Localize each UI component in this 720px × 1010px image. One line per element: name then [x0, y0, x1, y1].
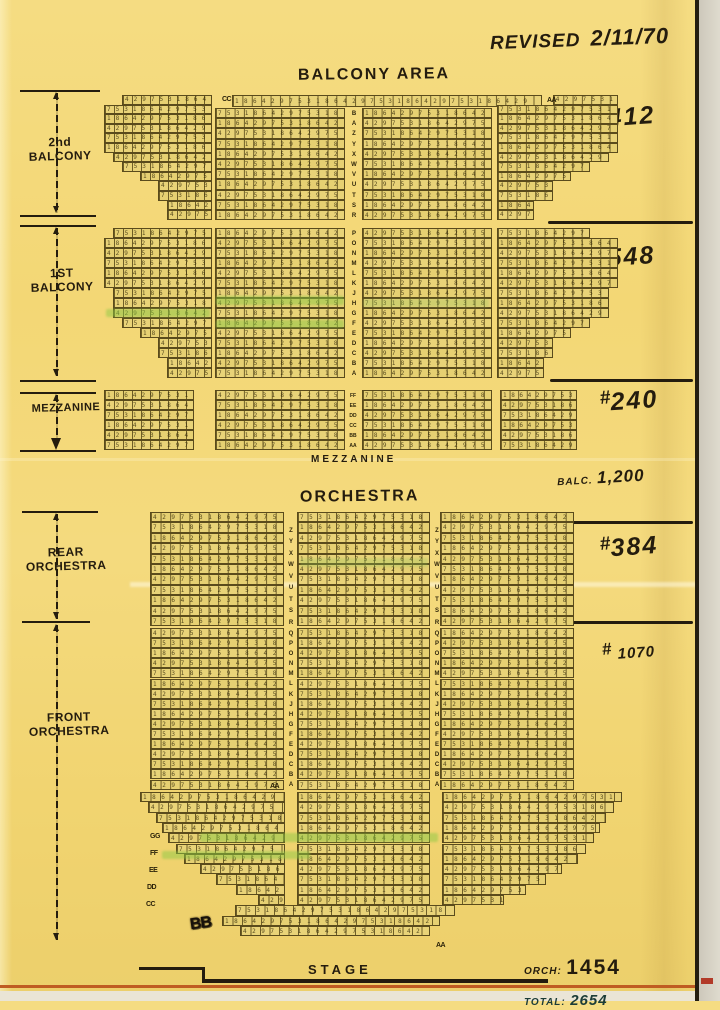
- seat-row: 753186429753186: [442, 844, 586, 854]
- seat-row: 4297531: [553, 95, 618, 105]
- row-letter: Z: [347, 129, 361, 139]
- seat-row: 42975318642975: [297, 802, 430, 812]
- seat-row: 18642975: [140, 172, 212, 182]
- count-rule: [568, 521, 693, 524]
- row-letter: R: [347, 211, 361, 221]
- seat-row: 42975318642975: [362, 440, 492, 450]
- seat-row: 42975318642975: [297, 595, 430, 605]
- seat-row: 75318642975318: [215, 139, 345, 149]
- row-letter: N: [285, 659, 297, 669]
- row-letter: L: [347, 269, 361, 279]
- seat-row: 18642975318642: [297, 522, 430, 532]
- seat-row: 186429753186: [104, 268, 212, 278]
- seat-row: 75318642975318: [215, 169, 345, 179]
- seat-row: 18642975318642: [440, 689, 574, 699]
- seat-row: 4297531864297: [442, 864, 562, 874]
- seat-row: 42975318642975: [297, 769, 430, 779]
- dim-line-front-orchestra: [56, 625, 58, 940]
- seat-row: 42975318642975: [215, 390, 345, 400]
- seat-row: 42975318642975: [150, 749, 284, 759]
- row-letter: B: [347, 109, 361, 119]
- row-letter: B: [285, 770, 297, 780]
- seat-row: 7531864297: [104, 410, 194, 420]
- seat-row: 7531864297531: [497, 105, 618, 115]
- arrow-down-icon: [53, 612, 59, 619]
- seat-row: 186429753: [500, 420, 577, 430]
- seat-row: 18642975318642: [440, 780, 574, 790]
- seat-row: 753186429: [500, 410, 577, 420]
- seat-row: 18642975318642: [362, 248, 492, 258]
- seat-row: 75318642975318: [297, 749, 430, 759]
- section-label-line2: BALCONY: [14, 279, 110, 296]
- seat-row: 18642975318642: [215, 210, 345, 220]
- row-edge-label: AA: [547, 97, 556, 104]
- seat-row: 7531864297: [122, 162, 212, 172]
- row-letter: C: [285, 760, 297, 770]
- seat-row: 18642975318642: [440, 628, 574, 638]
- row-letter: F: [285, 730, 297, 740]
- highlight-marker: [162, 851, 310, 859]
- seat-row: 4297531864297: [497, 248, 618, 258]
- seat-row: 75318642975318: [440, 648, 574, 658]
- seat-row: 75318642975318: [150, 585, 284, 595]
- seat-row: 75318642975318: [440, 533, 574, 543]
- aisle-row-letters: PONMLKJHGFEDCBA: [347, 229, 361, 379]
- orchestra-title: ORCHESTRA: [300, 487, 420, 506]
- seat-row: 18642975318642: [150, 648, 284, 658]
- mezzanine-caption: MEZZANINE: [311, 454, 396, 465]
- seat-row: 18642975318642: [440, 658, 574, 668]
- seat-row: 18642975318642: [362, 108, 492, 118]
- seat-row: 42975318642975: [362, 288, 492, 298]
- row-letter: M: [431, 669, 443, 679]
- count-rule: [550, 379, 693, 382]
- row-letter: H: [347, 299, 361, 309]
- aisle-row-letters: ZYXWVUTSR: [285, 514, 297, 629]
- seat-row: 75318642975318: [362, 268, 492, 278]
- seat-row: 4297531864297: [497, 124, 618, 134]
- seat-row: 42975318642975: [362, 210, 492, 220]
- seat-row: 75318642975318: [362, 420, 492, 430]
- row-letter: U: [347, 180, 361, 190]
- seat-row: 18642975318642: [215, 410, 345, 420]
- count-value: 1070: [617, 643, 655, 663]
- section-label-front-orchestra: FRONT ORCHESTRA: [14, 709, 125, 740]
- seat-row: 75318642975318: [215, 248, 345, 258]
- row-letter: C: [431, 760, 443, 770]
- seat-row: 18642975318642: [297, 616, 430, 626]
- seat-row: 75318642975318: [215, 430, 345, 440]
- row-letter: AA: [345, 441, 361, 451]
- section-label-line2: ORCHESTRA: [14, 723, 124, 740]
- seat-row: 42975318642975: [297, 864, 430, 874]
- seat-row: 18642975318642: [297, 792, 430, 802]
- seat-row: 42975: [167, 210, 212, 220]
- row-letter: U: [431, 583, 443, 595]
- seat-row: 1864297531864: [497, 114, 618, 124]
- seat-row: 42975318642975: [215, 238, 345, 248]
- seat-row: 429753186: [500, 430, 577, 440]
- seat-row: 753186: [497, 191, 553, 201]
- seat-row: 75318642975318: [297, 574, 430, 584]
- seat-row: 75318642975318: [297, 780, 430, 790]
- seat-row: 42975318642975: [150, 719, 284, 729]
- section-label-line2: BALCONY: [12, 148, 108, 165]
- row-letter: W: [431, 560, 443, 572]
- row-letter: BB: [345, 431, 361, 441]
- balcony-total-label: BALC.: [557, 475, 593, 488]
- seat-row: 18642975318642: [150, 769, 284, 779]
- dim-line-mezzanine: [56, 395, 58, 440]
- seat-row: 42975318642975: [297, 648, 430, 658]
- seat-row: 75318642975318: [215, 368, 345, 378]
- dim-rule-orchestra-top: [22, 511, 98, 513]
- row-letter: K: [347, 279, 361, 289]
- aisle-row-letters: QPONMLKJHGFEDCBA: [285, 629, 297, 791]
- seat-row: 75318642975318: [215, 200, 345, 210]
- seat-row: 18642975318642: [297, 668, 430, 678]
- row-letter: R: [431, 618, 443, 630]
- seat-row: 1864297531864: [162, 823, 285, 833]
- row-letter: E: [285, 740, 297, 750]
- revised-date: 2/11/70: [590, 23, 670, 51]
- section-label-mezzanine: MEZZANINE: [14, 401, 118, 417]
- seat-row: 18642975318642: [297, 823, 430, 833]
- row-letter: U: [285, 583, 297, 595]
- count-value: 240: [610, 385, 660, 416]
- seat-row: 1864297531: [104, 390, 194, 400]
- row-edge-label: AA: [270, 783, 279, 790]
- row-letter: V: [431, 572, 443, 584]
- seat-row: 42975318642975: [440, 585, 574, 595]
- seat-row: 18642975318642: [362, 278, 492, 288]
- row-letter: Y: [431, 537, 443, 549]
- row-letter: P: [285, 639, 297, 649]
- arrow-down-icon: [51, 438, 61, 450]
- seat-row: 42975: [497, 368, 544, 378]
- seat-row: 75318642975318: [150, 668, 284, 678]
- scanned-seating-chart: { "header": { "revised_label": "REVISED"…: [0, 0, 720, 1001]
- seat-row: 42975318642975: [150, 658, 284, 668]
- count-mezzanine: #240: [599, 384, 659, 418]
- seat-row: 7531864297: [497, 228, 590, 238]
- arrow-up-icon: [53, 227, 59, 234]
- seat-row: 75318642975318: [215, 278, 345, 288]
- seat-row: 753186429: [500, 440, 577, 450]
- seat-row: 42975318642975: [150, 606, 284, 616]
- row-letter: M: [285, 669, 297, 679]
- seat-row: 75318642975318642975318: [235, 905, 455, 915]
- seat-row: 75318642975318: [297, 874, 430, 884]
- seat-row: 75318642975318: [150, 699, 284, 709]
- seat-row: 75318642975318: [215, 108, 345, 118]
- seat-row: 429753186: [500, 400, 577, 410]
- seat-row: 18642975318642: [440, 512, 574, 522]
- seat-row: 75318642975318642: [442, 813, 606, 823]
- seat-row: 18642975318642: [362, 169, 492, 179]
- row-letter: A: [347, 119, 361, 129]
- seat-row: 7531864297531: [497, 133, 618, 143]
- highlight-marker: [363, 299, 489, 307]
- seat-row: 18642975318642: [362, 308, 492, 318]
- orchestra-total-label: ORCH:: [524, 966, 562, 977]
- row-letter: Q: [285, 629, 297, 639]
- seat-row: 75318642975318: [297, 719, 430, 729]
- row-letter: K: [431, 690, 443, 700]
- row-letter: V: [285, 572, 297, 584]
- row-letter: A: [285, 780, 297, 790]
- seat-row: 42975: [167, 368, 212, 378]
- aisle-row-letters: BAZYXWVUTSR: [347, 109, 361, 221]
- dim-rule-mezzanine-bottom: [20, 450, 96, 452]
- seat-row: 753186: [158, 348, 212, 358]
- hash-sign: #: [601, 639, 612, 659]
- highlight-marker: [200, 833, 438, 842]
- seat-row: 42975318642975: [362, 118, 492, 128]
- seat-row: 42975318642975: [297, 533, 430, 543]
- row-letter: S: [285, 606, 297, 618]
- seat-row: 75318642975318: [215, 338, 345, 348]
- seat-row: 429753: [497, 338, 553, 348]
- row-letter: G: [347, 309, 361, 319]
- seat-row: 75318642975318: [297, 813, 430, 823]
- row-letter: W: [285, 560, 297, 572]
- row-letter: L: [285, 679, 297, 689]
- seat-row: 429753186429: [104, 124, 212, 134]
- seat-row: 42975318642975: [150, 780, 284, 790]
- row-letter: R: [285, 618, 297, 630]
- seat-row: 42975318642975: [148, 802, 285, 812]
- row-letter: J: [347, 289, 361, 299]
- count-rear-orchestra: #384: [599, 530, 659, 564]
- seat-row: 42975318642975: [362, 348, 492, 358]
- dim-rule-boundary: [20, 215, 96, 217]
- seat-row: 75318642975318: [297, 543, 430, 553]
- seat-row: 186429753: [442, 885, 526, 895]
- seat-row: 18642975: [140, 328, 212, 338]
- seat-row: 42975318642975: [440, 554, 574, 564]
- row-letter: D: [347, 339, 361, 349]
- seat-row: 18642975: [497, 172, 571, 182]
- row-edge-label: FF: [150, 850, 158, 857]
- row-scribble: BB: [189, 914, 212, 935]
- highlight-marker: [216, 296, 344, 305]
- row-edge-label: AA: [436, 942, 445, 949]
- seat-row: 18642: [236, 885, 285, 895]
- row-letter: X: [347, 150, 361, 160]
- seat-row: 18642975318642: [215, 258, 345, 268]
- arrow-up-icon: [53, 92, 59, 99]
- seat-row: 18642975318642: [442, 854, 578, 864]
- row-letter: L: [431, 679, 443, 689]
- grand-total-label: TOTAL:: [524, 997, 566, 1008]
- seat-row: 75318642975318: [215, 400, 345, 410]
- seat-row: 75318642975318: [156, 813, 285, 823]
- seat-row: 4297531: [442, 895, 504, 905]
- row-letter: A: [431, 780, 443, 790]
- row-letter: EE: [345, 401, 361, 411]
- row-letter: X: [431, 549, 443, 561]
- arrow-up-icon: [53, 624, 59, 631]
- seat-row: 75318642975: [113, 288, 212, 298]
- seat-row: 42975318642975: [215, 328, 345, 338]
- row-letter: V: [347, 170, 361, 180]
- seat-row: 42975318642975: [297, 895, 430, 905]
- seat-row: 75318642975318: [297, 606, 430, 616]
- seat-row: 18642: [167, 358, 212, 368]
- seat-row: 75318642975: [113, 228, 212, 238]
- seat-row: 42975318642975: [215, 420, 345, 430]
- seat-row: 7531864297: [497, 318, 590, 328]
- seat-row: 7531864297: [122, 318, 212, 328]
- seat-row: 186429753: [500, 390, 577, 400]
- row-letter: S: [347, 201, 361, 211]
- seat-row: 18642975318642: [440, 749, 574, 759]
- seat-row: 42975318642975: [297, 679, 430, 689]
- dim-rule-top-2nd-balcony: [20, 90, 100, 92]
- seat-row: 42975318642975: [215, 159, 345, 169]
- seat-row: 75318642975318: [440, 769, 574, 779]
- seat-row: 753186: [497, 348, 553, 358]
- seat-row: 42975318642: [113, 153, 212, 163]
- row-letter: Z: [431, 526, 443, 538]
- seat-row: 18642975318642: [150, 679, 284, 689]
- seat-row: 1864297531: [104, 420, 194, 430]
- row-letter: H: [431, 710, 443, 720]
- seat-row: 42975318642975: [150, 543, 284, 553]
- seat-row: 42975318642975: [215, 358, 345, 368]
- scan-edge-strip: [699, 0, 720, 1001]
- seat-row: 7531864297: [497, 162, 590, 172]
- seat-row: 7531864297: [104, 440, 194, 450]
- seat-row: 18642975318642: [440, 574, 574, 584]
- seat-row: 429753186429: [497, 153, 609, 163]
- row-letter: K: [285, 690, 297, 700]
- seat-row: 42975318642975: [440, 522, 574, 532]
- seat-row: 4297531864: [104, 400, 194, 410]
- balcony-total: BALC. 1,200: [557, 466, 645, 491]
- seat-row: 18642975318642: [150, 595, 284, 605]
- seat-row: 18642975318642: [215, 179, 345, 189]
- section-label-second-balcony: 2nd BALCONY: [12, 134, 109, 165]
- seat-row: 75318642975318: [362, 128, 492, 138]
- aisle-row-letters: ZYXWVUTSR: [431, 514, 443, 629]
- row-letter: N: [347, 249, 361, 259]
- seat-row: 42975318642975: [215, 268, 345, 278]
- seat-row: 18642975318642: [215, 149, 345, 159]
- arrow-up-icon: [53, 394, 59, 401]
- seat-row: 1864297531864: [497, 238, 618, 248]
- seat-row: 18642975318: [113, 298, 212, 308]
- seat-row: 18642975318642: [150, 564, 284, 574]
- row-letter: F: [347, 319, 361, 329]
- seat-row: 186429753186: [104, 238, 212, 248]
- seat-row: 75318642975: [442, 874, 546, 884]
- seat-row: 753186429753: [497, 288, 609, 298]
- count-rule: [548, 221, 693, 224]
- seat-row: 18642975318642975: [442, 823, 600, 833]
- seat-row: 18642975318642: [362, 400, 492, 410]
- row-letter: T: [431, 595, 443, 607]
- seat-row: 18642975318642: [150, 739, 284, 749]
- seat-row: 1864: [497, 201, 534, 211]
- seat-row: 4297531864297531: [442, 833, 594, 843]
- seat-row: 42975318642975: [362, 228, 492, 238]
- seat-row: 42975318642975: [440, 638, 574, 648]
- orchestra-total: ORCH: 1454: [524, 956, 621, 980]
- seat-row: 42975318642975: [150, 574, 284, 584]
- dim-rule-orchestra-split: [22, 621, 90, 623]
- seat-row: 18642975318642: [297, 759, 430, 769]
- seat-row: 42975318642975: [215, 190, 345, 200]
- row-letter: M: [347, 259, 361, 269]
- seat-row: 75318642975318: [362, 190, 492, 200]
- seat-row: 7531864297531: [497, 258, 618, 268]
- seat-row: 42975318642975: [440, 699, 574, 709]
- seat-row: 75318642975318: [440, 679, 574, 689]
- seat-row: 429753186429: [497, 308, 609, 318]
- seat-row: 75318642975318: [440, 595, 574, 605]
- seat-row: 429753186429: [104, 248, 212, 258]
- seat-row: 75318642975318: [362, 390, 492, 400]
- highlight-marker: [106, 309, 210, 317]
- row-letter: T: [347, 191, 361, 201]
- seat-row: 75318642975318: [362, 358, 492, 368]
- orchestra-total-value: 1454: [566, 956, 621, 979]
- seat-row: 75318642975318: [362, 159, 492, 169]
- seat-row: 75318642975318: [440, 709, 574, 719]
- seat-row: 18642975318642: [440, 606, 574, 616]
- row-edge-label: EE: [149, 867, 157, 874]
- section-label-rear-orchestra: REAR ORCHESTRA: [14, 544, 119, 575]
- section-label-line2: ORCHESTRA: [14, 558, 118, 575]
- row-letter: CC: [345, 421, 361, 431]
- row-letter: F: [431, 730, 443, 740]
- row-letter: W: [347, 160, 361, 170]
- row-letter: G: [285, 720, 297, 730]
- row-letter: FF: [345, 391, 361, 401]
- seat-row: 18642975318642: [362, 200, 492, 210]
- seat-row: 42975318642975: [297, 709, 430, 719]
- seat-row: 186429753186429: [140, 792, 285, 802]
- seat-row: 18642975318642: [215, 228, 345, 238]
- seat-row: 18642975318642: [215, 348, 345, 358]
- paper-edge-light: [0, 0, 12, 1001]
- seat-row: 753186: [158, 191, 212, 201]
- seat-row: 42975318642975318642: [240, 926, 430, 936]
- seat-row: 429753: [158, 338, 212, 348]
- seat-row: 186429753186: [104, 114, 212, 124]
- row-letter: J: [431, 700, 443, 710]
- seat-row: 429753186429753186: [442, 802, 614, 812]
- row-letter: A: [347, 369, 361, 379]
- seat-row: 18642975318642: [297, 585, 430, 595]
- row-letter: O: [347, 239, 361, 249]
- section-label-first-balcony: 1ST BALCONY: [14, 265, 111, 296]
- row-letter: Y: [347, 140, 361, 150]
- seat-row: 4297531864: [104, 430, 194, 440]
- seat-row: 4297: [497, 210, 534, 220]
- balcony-area-title: BALCONY AREA: [298, 65, 450, 85]
- row-edge-label: GG: [150, 833, 160, 840]
- seat-row: 186429753186: [497, 298, 609, 308]
- seat-row: 18642975318642: [362, 139, 492, 149]
- row-letter: D: [431, 750, 443, 760]
- seat-row: 18642975318642: [440, 543, 574, 553]
- seat-row: 42975318642975: [297, 739, 430, 749]
- seat-row: 429: [258, 895, 285, 905]
- row-letter: E: [347, 329, 361, 339]
